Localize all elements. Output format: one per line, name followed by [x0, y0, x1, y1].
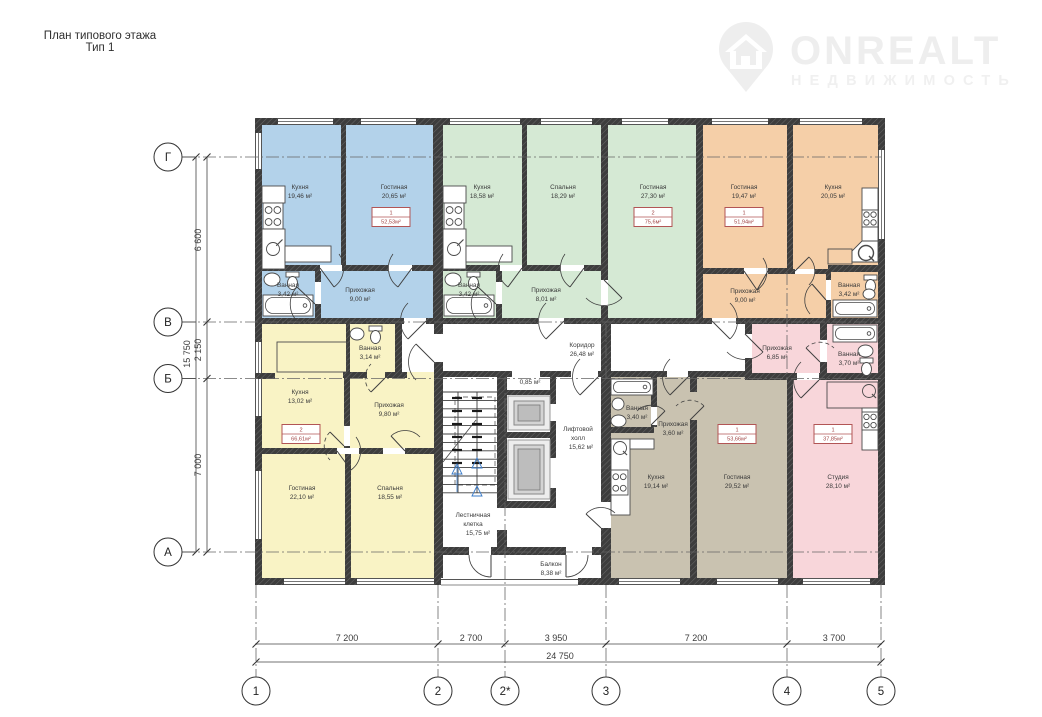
svg-text:8,01 м²: 8,01 м²	[536, 296, 557, 303]
svg-text:А: А	[164, 547, 172, 559]
svg-text:Прихожая: Прихожая	[531, 287, 561, 294]
svg-text:19,47 м²: 19,47 м²	[732, 193, 756, 200]
svg-text:18,55 м²: 18,55 м²	[378, 494, 402, 501]
svg-text:0,85 м²: 0,85 м²	[520, 379, 541, 386]
svg-text:1: 1	[742, 211, 745, 217]
svg-text:18,58 м²: 18,58 м²	[470, 193, 494, 200]
svg-text:6,85 м²: 6,85 м²	[767, 354, 788, 361]
svg-text:27,30 м²: 27,30 м²	[641, 193, 665, 200]
svg-text:52,53м²: 52,53м²	[381, 220, 401, 226]
svg-text:19,14 м²: 19,14 м²	[644, 483, 668, 490]
svg-text:Спальня: Спальня	[550, 184, 576, 191]
svg-text:2: 2	[651, 211, 654, 217]
svg-text:Ванная: Ванная	[838, 351, 860, 358]
svg-text:1: 1	[831, 428, 834, 434]
svg-text:Балкон: Балкон	[540, 561, 562, 568]
svg-text:1: 1	[389, 211, 392, 217]
svg-text:Ванная: Ванная	[277, 282, 299, 289]
svg-text:53,66м²: 53,66м²	[727, 437, 747, 443]
svg-text:Гостиная: Гостиная	[381, 184, 408, 191]
svg-text:3 700: 3 700	[823, 633, 846, 643]
svg-text:Ванная: Ванная	[626, 405, 648, 412]
svg-text:22,10 м²: 22,10 м²	[290, 494, 314, 501]
svg-text:3,42 м²: 3,42 м²	[839, 291, 860, 298]
svg-text:13,02 м²: 13,02 м²	[288, 398, 312, 405]
svg-text:Студия: Студия	[827, 474, 849, 481]
svg-text:Прихожая: Прихожая	[658, 421, 688, 428]
svg-text:3,40 м²: 3,40 м²	[627, 414, 648, 421]
svg-text:3,60 м²: 3,60 м²	[663, 430, 684, 437]
svg-text:В: В	[164, 317, 172, 329]
svg-text:4: 4	[784, 686, 791, 698]
svg-text:2: 2	[435, 686, 441, 698]
svg-text:51,94м²: 51,94м²	[734, 220, 754, 226]
svg-text:Ванная: Ванная	[458, 282, 480, 289]
svg-text:3,70 м²: 3,70 м²	[839, 360, 860, 367]
svg-text:1: 1	[735, 428, 738, 434]
svg-text:26,48 м²: 26,48 м²	[570, 351, 594, 358]
svg-text:Гостиная: Гостиная	[724, 474, 751, 481]
svg-text:66,61м²: 66,61м²	[291, 437, 311, 443]
svg-text:Коридор: Коридор	[569, 342, 595, 349]
svg-text:5: 5	[878, 686, 884, 698]
svg-text:8,38 м²: 8,38 м²	[541, 570, 562, 577]
svg-text:Гостиная: Гостиная	[640, 184, 667, 191]
svg-text:18,29 м²: 18,29 м²	[551, 193, 575, 200]
svg-text:37,85м²: 37,85м²	[823, 437, 843, 443]
svg-text:3: 3	[603, 686, 609, 698]
svg-text:Б: Б	[164, 374, 172, 386]
svg-text:3,14 м²: 3,14 м²	[360, 354, 381, 361]
svg-text:1: 1	[253, 686, 259, 698]
svg-text:9,80 м²: 9,80 м²	[379, 411, 400, 418]
svg-text:19,46 м²: 19,46 м²	[288, 193, 312, 200]
svg-text:2 700: 2 700	[460, 633, 483, 643]
svg-text:Гостиная: Гостиная	[731, 184, 758, 191]
svg-text:28,10 м²: 28,10 м²	[826, 483, 850, 490]
svg-text:9,00 м²: 9,00 м²	[735, 297, 756, 304]
svg-text:Лифтовой: Лифтовой	[563, 425, 593, 433]
svg-text:20,65 м²: 20,65 м²	[382, 193, 406, 200]
svg-text:2*: 2*	[500, 686, 511, 698]
svg-text:15,62 м²: 15,62 м²	[569, 444, 593, 451]
svg-text:Прихожая: Прихожая	[374, 402, 404, 409]
svg-text:20,05 м²: 20,05 м²	[821, 193, 845, 200]
svg-text:Гостиная: Гостиная	[289, 485, 316, 492]
svg-text:холл: холл	[571, 435, 585, 442]
svg-text:6 600: 6 600	[193, 229, 203, 252]
svg-text:Кухня: Кухня	[647, 474, 665, 481]
svg-text:7 000: 7 000	[193, 454, 203, 477]
svg-text:7 200: 7 200	[336, 633, 359, 643]
svg-text:Г: Г	[165, 152, 172, 164]
svg-text:Прихожая: Прихожая	[730, 288, 760, 295]
svg-text:ONREALT: ONREALT	[790, 29, 1001, 73]
svg-text:Тип 1: Тип 1	[86, 42, 115, 54]
svg-text:15 750: 15 750	[182, 340, 192, 368]
svg-text:29,52 м²: 29,52 м²	[725, 483, 749, 490]
svg-text:Ванная: Ванная	[838, 282, 860, 289]
svg-text:Прихожая: Прихожая	[762, 345, 792, 352]
svg-text:План типового этажа: План типового этажа	[44, 30, 157, 42]
svg-text:3 950: 3 950	[545, 633, 568, 643]
svg-text:7 200: 7 200	[685, 633, 708, 643]
svg-text:клетка: клетка	[463, 521, 483, 528]
svg-text:Ванная: Ванная	[359, 345, 381, 352]
svg-text:Кухня: Кухня	[291, 389, 309, 396]
svg-text:НЕДВИЖИМОСТЬ: НЕДВИЖИМОСТЬ	[791, 73, 1017, 89]
svg-text:2 150: 2 150	[193, 339, 203, 362]
svg-text:Лестничная: Лестничная	[456, 512, 491, 519]
svg-text:15,75 м²: 15,75 м²	[466, 530, 490, 537]
svg-text:Кухня: Кухня	[824, 184, 842, 191]
svg-text:9,00 м²: 9,00 м²	[350, 296, 371, 303]
svg-text:Кухня: Кухня	[291, 184, 309, 191]
svg-text:75,6м²: 75,6м²	[645, 220, 662, 226]
svg-text:3,42 м²: 3,42 м²	[278, 291, 299, 298]
svg-text:Спальня: Спальня	[377, 485, 403, 492]
svg-text:24 750: 24 750	[546, 651, 574, 661]
svg-text:2: 2	[299, 428, 302, 434]
svg-text:Кухня: Кухня	[473, 184, 491, 191]
svg-text:Прихожая: Прихожая	[345, 287, 375, 294]
svg-text:3,42 м²: 3,42 м²	[459, 291, 480, 298]
